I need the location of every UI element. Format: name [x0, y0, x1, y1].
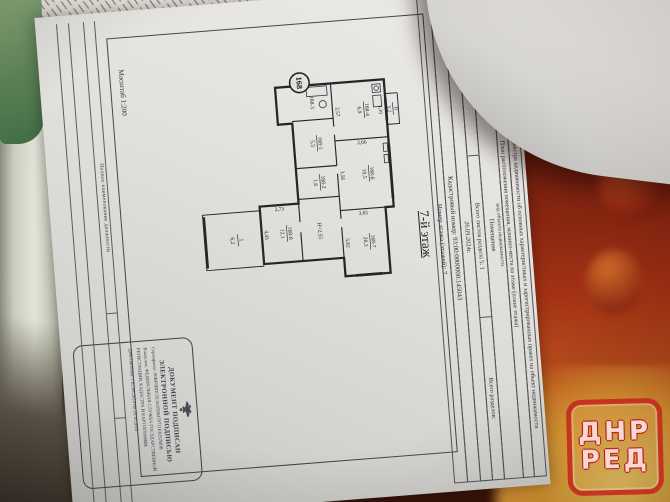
- dim-kitchen-width: 2,57: [334, 107, 341, 117]
- room-168-4-area: 6,9: [356, 106, 363, 114]
- balcony2-area: 3,2: [385, 105, 392, 113]
- dnr-red-watermark: ДНР РЕД: [566, 398, 664, 496]
- dim-room8-depth: 2,73: [275, 206, 285, 213]
- dim-room6-depth: 2,66: [357, 140, 367, 147]
- digital-signature-stamp: ДОКУМЕНТ ПОДПИСАН ЭЛЕКТРОННОЙ ПОДПИСЬЮ С…: [72, 337, 203, 490]
- dim-room7-width: 5,62: [344, 238, 351, 248]
- apartment-number: 168: [294, 76, 304, 89]
- dim-room6-width: 3,56: [339, 171, 346, 181]
- watermark-line-2: РЕД: [581, 446, 651, 475]
- berry-blob: [586, 250, 642, 314]
- balcony1-id: I: [237, 239, 243, 241]
- room-168-7-area: 20,3: [362, 237, 369, 247]
- floor-plan: 168 II 3,2 168-4 6,9 168-6 10,5 168-7 20…: [158, 62, 416, 296]
- photo-of-document: Выписка из Единого государственного реес…: [0, 0, 670, 502]
- room-168-1-area: 5,5: [309, 140, 316, 148]
- room-168-3-id: 168-3: [308, 96, 315, 110]
- room-168-8-area: 12,1: [278, 229, 285, 239]
- ceiling-height: Н=2,55: [316, 222, 323, 239]
- room-168-2-area: 1,6: [312, 179, 319, 187]
- room-168-6-area: 10,5: [360, 169, 367, 179]
- balcony1-area: 6,2: [229, 237, 236, 245]
- dim-balcony2-width: 3,10: [377, 105, 384, 115]
- coat-of-arms-icon: [178, 400, 192, 419]
- dim-room7-depth: 3,65: [358, 210, 368, 217]
- dim-room8-width: 4,43: [263, 230, 270, 240]
